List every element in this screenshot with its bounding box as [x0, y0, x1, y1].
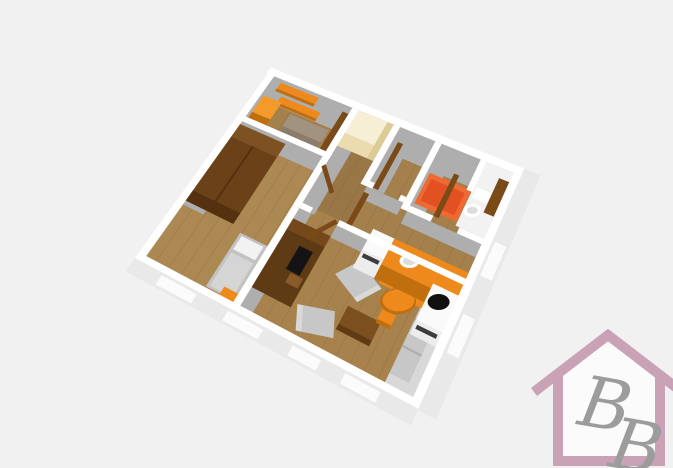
floorplan-render: B B	[0, 0, 673, 468]
toilet-seat	[467, 207, 478, 214]
cooktop	[428, 294, 450, 310]
